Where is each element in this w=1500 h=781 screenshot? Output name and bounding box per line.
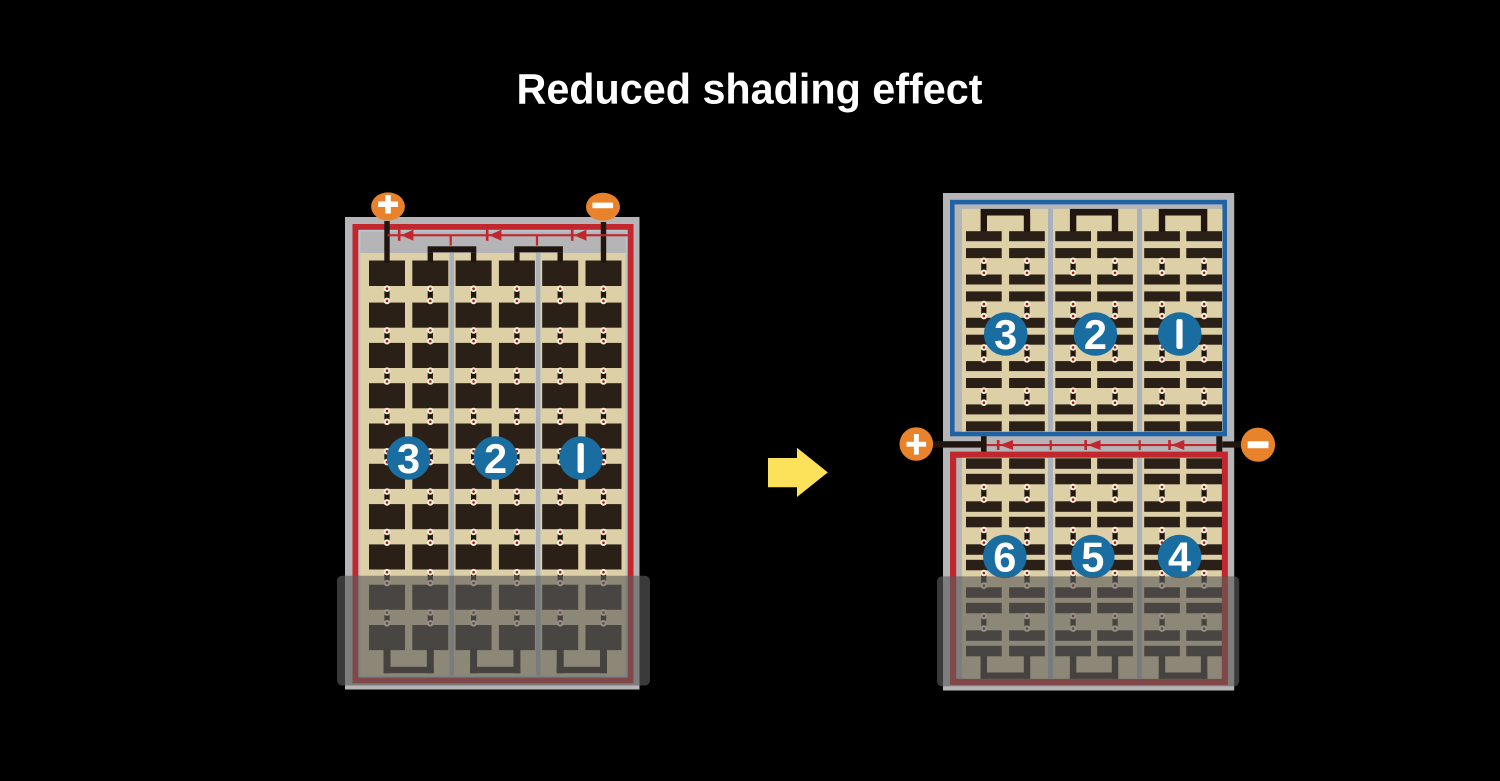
svg-text:5: 5 <box>1081 534 1104 581</box>
svg-text:2: 2 <box>484 435 507 482</box>
svg-text:2: 2 <box>1084 311 1107 358</box>
svg-text:3: 3 <box>397 435 420 482</box>
svg-text:3: 3 <box>994 311 1017 358</box>
svg-text:6: 6 <box>993 534 1016 581</box>
svg-text:4: 4 <box>1168 534 1191 581</box>
svg-text:Reduced shading effect: Reduced shading effect <box>517 67 983 114</box>
